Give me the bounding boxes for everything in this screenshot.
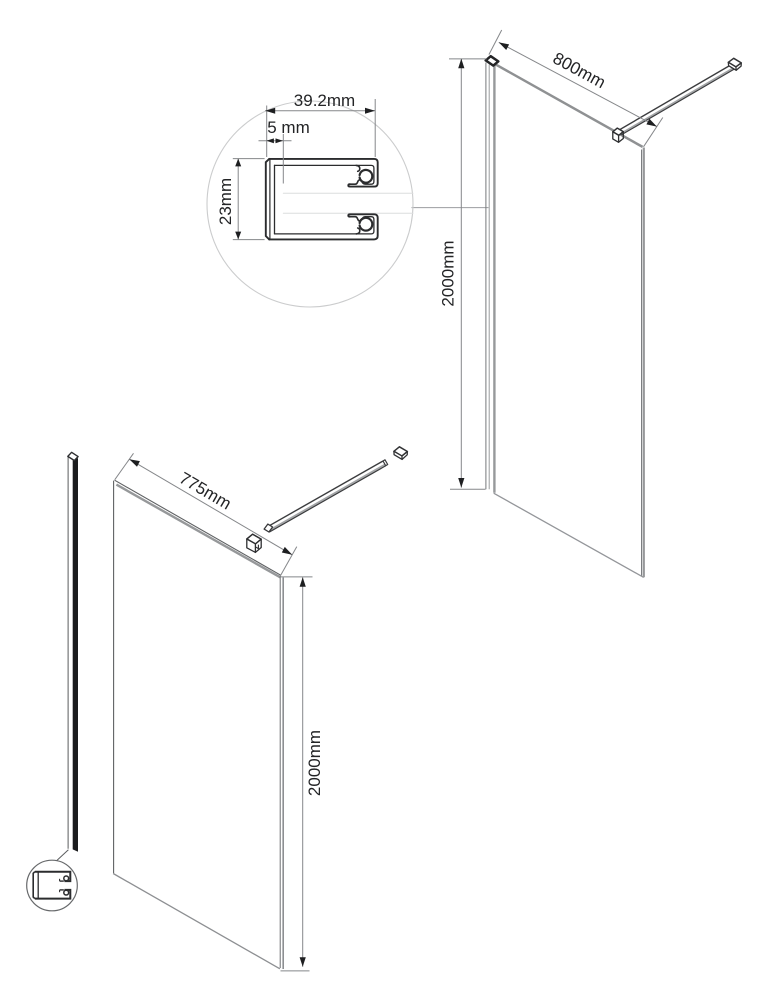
svg-text:23mm: 23mm: [216, 178, 235, 225]
svg-text:39.2mm: 39.2mm: [294, 91, 355, 110]
svg-text:2000mm: 2000mm: [305, 730, 324, 796]
svg-text:5 mm: 5 mm: [267, 118, 310, 137]
svg-text:775mm: 775mm: [176, 468, 235, 513]
svg-text:2000mm: 2000mm: [439, 240, 458, 306]
